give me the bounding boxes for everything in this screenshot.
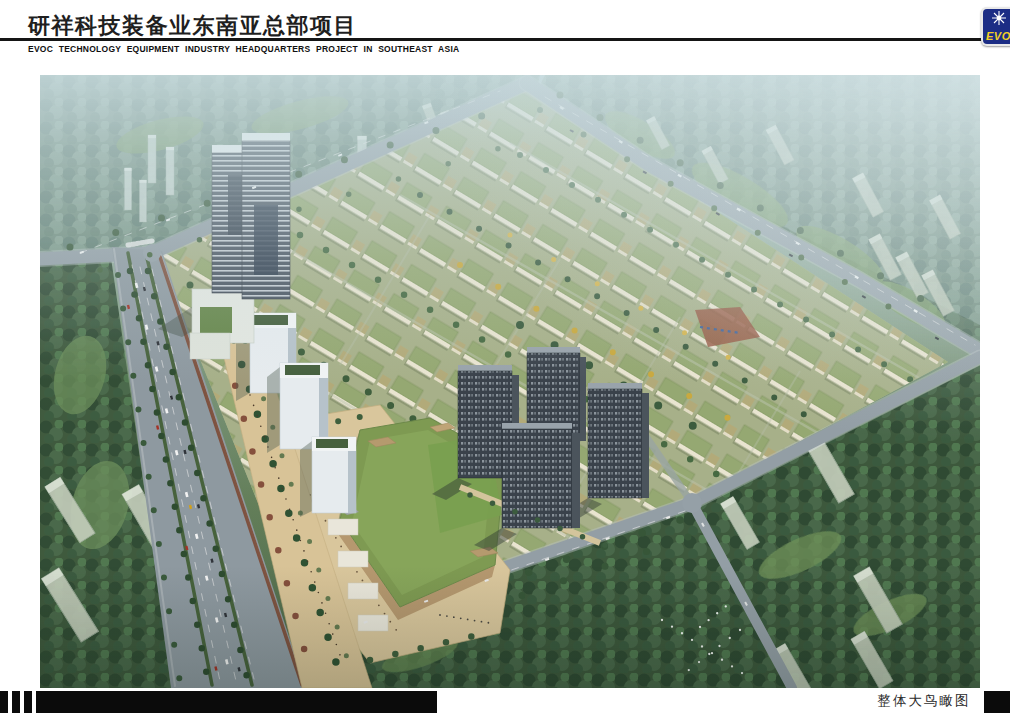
footer-stripe [0, 691, 8, 713]
project-title-en: EVOC TECHNOLOGY EQUIPMENT INDUSTRY HEADQ… [28, 44, 459, 54]
evoc-logo: EVOC [981, 7, 1010, 46]
project-title-cn: 研祥科技装备业东南亚总部项目 [28, 11, 357, 41]
drawing-caption: 整体大鸟瞰图 [858, 692, 990, 712]
footer-bar [36, 691, 437, 713]
logo-text: EVOC [986, 30, 1010, 42]
starburst-icon [990, 10, 1008, 26]
header-divider [0, 38, 1010, 41]
footer-stripe [24, 691, 32, 713]
aerial-rendering [40, 75, 980, 688]
presentation-board: 研祥科技装备业东南亚总部项目 EVOC TECHNOLOGY EQUIPMENT… [0, 0, 1010, 714]
footer-corner-square [984, 691, 1010, 713]
footer-stripe [12, 691, 20, 713]
